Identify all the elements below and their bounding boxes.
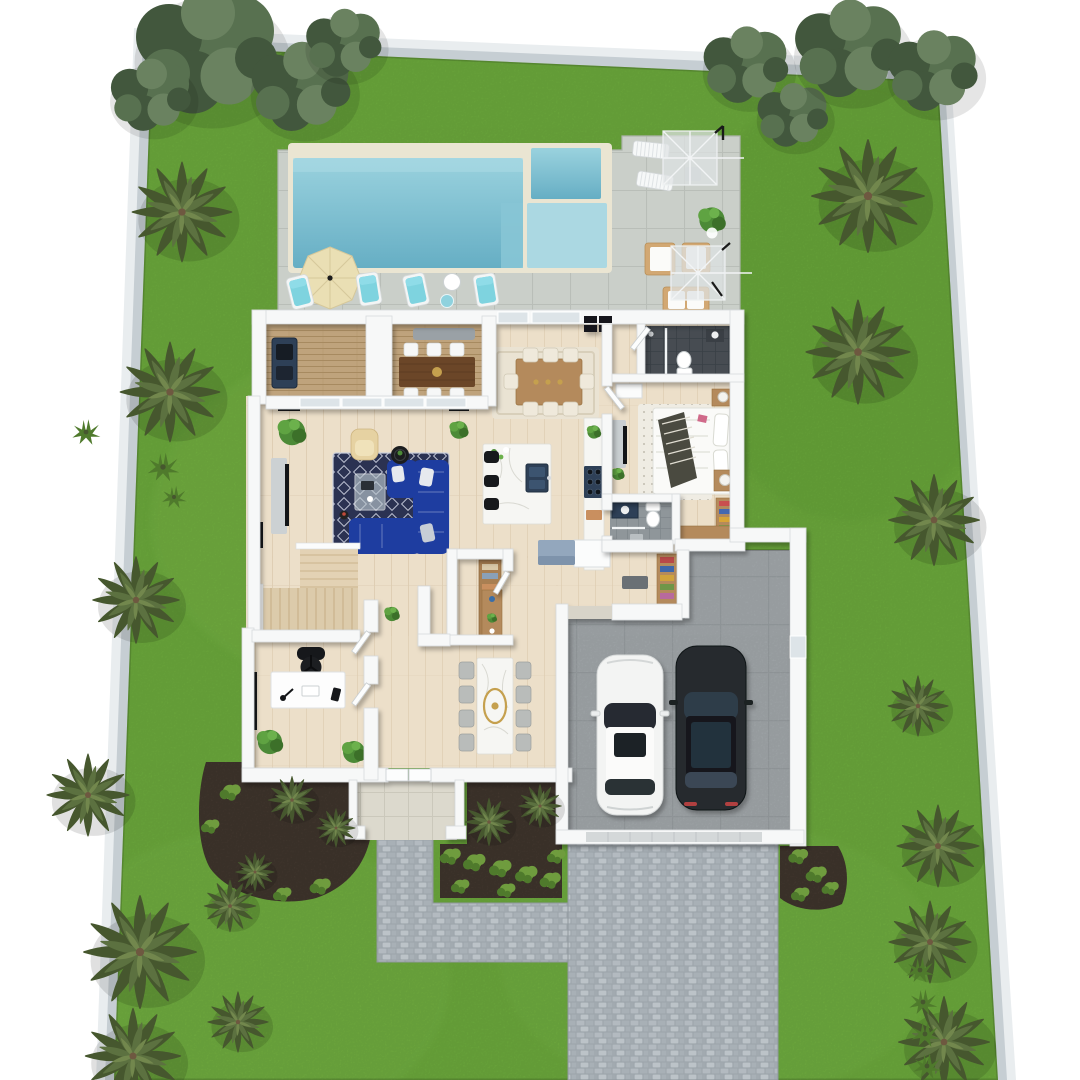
site-plan-canvas [0,0,1080,1080]
dining-area [492,347,599,419]
garage-door-threshold [568,606,612,619]
side-mirror [660,711,669,716]
toilet [646,503,660,527]
plant-pot [707,228,718,239]
entry-console [482,590,502,638]
panoramic-roof [691,722,731,768]
garage-north-wall [612,604,682,620]
side-mirror [591,711,600,716]
taillight [725,802,738,806]
pool-steps [501,203,523,268]
tanning-ledge [527,203,607,268]
table-centerpiece [432,367,442,377]
pool-side-table [444,274,461,291]
tv [285,464,289,526]
garage-window [790,636,806,658]
deck-pillar [366,316,392,402]
coffee-table [355,474,385,510]
cooktop [584,466,604,498]
bedroom-tv [623,426,627,464]
doormat [622,576,648,589]
side-mirror [669,700,678,705]
taillight [684,802,697,806]
wall-south-entry [430,768,572,782]
bar-stools [484,451,499,510]
stair-railing [296,543,360,549]
side-table [391,446,409,464]
sliding-door [426,398,466,407]
front-door [409,769,431,781]
sofa-pillow [391,465,405,483]
island-sink [526,464,551,492]
umbrella-pole [327,275,332,280]
lamp [718,392,728,402]
black-car [669,646,753,810]
tv-console [271,458,287,534]
pool-stool [441,295,454,308]
sliding-door [300,398,340,407]
keyboard [302,686,319,696]
toilet [677,352,692,377]
shower-head [648,331,653,336]
cutting-board [586,510,602,520]
sliding-door [384,398,424,407]
window [532,312,580,323]
front-door [386,769,408,781]
spa [531,148,601,199]
pool-area [278,126,752,315]
pool-lounger [356,271,383,306]
wall-east [730,310,744,542]
dresser [616,384,642,398]
front-porch [355,780,457,840]
armchair [351,429,378,460]
closet-bench [675,526,737,539]
white-car [591,655,669,815]
pillow [713,414,729,447]
sliding-door [342,398,382,407]
window [498,312,528,323]
porch-pillar [446,826,466,839]
floor-plan-render [0,0,1080,1080]
side-mirror [744,700,753,705]
deck-bench [413,328,475,340]
driveway [568,844,778,1080]
sunroof [614,733,646,757]
porch-rail [455,780,464,830]
lamp [720,475,731,486]
garage-east-wall [790,528,806,846]
pool-lounger [473,272,500,307]
